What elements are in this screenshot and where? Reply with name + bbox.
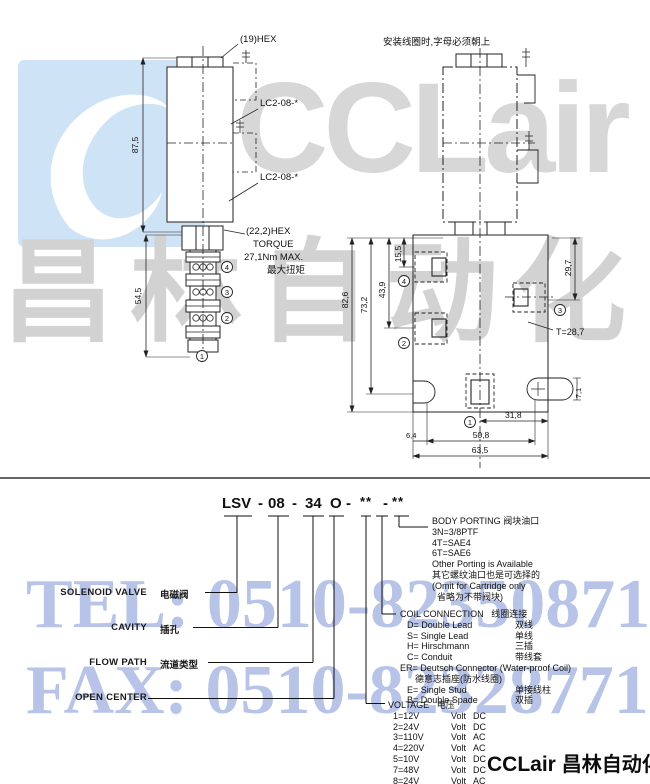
footer-brand-cn: 昌林自动化 — [562, 754, 650, 776]
dim-87-5: 87,5 — [130, 136, 140, 153]
right-port-4: 4 — [402, 277, 406, 286]
code-open-center: O — [330, 495, 342, 512]
coil-option-cn: 单接线柱 — [515, 685, 551, 695]
dim-50-8: 50,8 — [473, 430, 490, 440]
voltage-option: 4=220V — [393, 743, 451, 754]
porting-omit-note: (Omit for Cartridge only — [432, 581, 540, 592]
label-flow-path: FLOW PATH — [37, 657, 147, 668]
voltage-option: 5=10V — [393, 754, 451, 765]
coil-option-cn: 带线套 — [515, 652, 542, 662]
porting-note: Other Porting is Available — [432, 559, 540, 570]
voltage-unit: Volt — [451, 754, 473, 765]
label-solenoid-valve-cn: 电磁阀 — [160, 587, 189, 601]
label-flow-path-cn: 流道类型 — [160, 657, 198, 671]
porting-option: 4T=SAE4 — [432, 538, 540, 549]
voltage-current: AC — [473, 732, 486, 742]
dim-54-5: 54,5 — [133, 287, 143, 304]
code-dash-2: - — [292, 495, 297, 512]
voltage-current: DC — [473, 765, 486, 775]
coil-option-cn: 双插 — [515, 695, 533, 705]
voltage-option: 7=48V — [393, 765, 451, 776]
label-cavity-cn: 插孔 — [160, 622, 179, 636]
voltage-title: VOLTAGE — [388, 700, 429, 710]
body-porting-title-cn: 阀块油口 — [503, 516, 539, 526]
coil-option: S= Single Lead — [407, 631, 515, 642]
porting-option: 6T=SAE6 — [432, 548, 540, 559]
hex19-label: (19)HEX — [240, 34, 277, 45]
voltage-current: AC — [473, 776, 486, 784]
left-valve-drawing: 4 3 2 1 (19)HEX LC2-08-* LC2-08-* (22,2)… — [130, 34, 306, 362]
porting-option: 3N=3/8PTF — [432, 527, 540, 538]
torque-label: TORQUE — [253, 239, 293, 250]
coil-option: D= Double Lead — [407, 620, 515, 631]
dim-t-28-7: T=28,7 — [556, 327, 584, 337]
voltage-current: AC — [473, 743, 486, 753]
code-cavity: 08 — [268, 495, 285, 512]
coil-connection-title-cn: 线圈连接 — [491, 609, 527, 619]
coil-install-note: 安装线圈时,字母必须朝上 — [383, 36, 491, 48]
coil-option-cn: 双线 — [515, 620, 533, 630]
dim-29-7: 29,7 — [563, 259, 573, 276]
hex22-label: (22,2)HEX — [246, 226, 291, 237]
dim-6-4: 6,4 — [406, 431, 416, 440]
dim-63-5: 63,5 — [472, 445, 489, 455]
coil-option: E= Single Stud — [407, 685, 515, 696]
voltage-option: 2=24V — [393, 722, 451, 733]
torque-value: 27,1Nm MAX. — [244, 252, 303, 263]
porting-note-cn: 其它螺纹油口也是可选择的 — [432, 570, 540, 581]
code-dash-4: - — [383, 495, 388, 512]
voltage-unit: Volt — [451, 743, 473, 754]
voltage-current: DC — [473, 711, 486, 721]
coil-option-cn: 单线 — [515, 631, 533, 641]
left-port-2: 2 — [225, 314, 229, 323]
label-cavity: CAVITY — [37, 622, 147, 633]
coil-connection-block: COIL CONNECTION 线圈连接 D= Double Lead双线 S=… — [400, 609, 571, 706]
code-series: LSV — [222, 495, 251, 512]
left-port-1: 1 — [200, 352, 204, 361]
voltage-current: DC — [473, 722, 486, 732]
dim-43-9: 43,9 — [377, 281, 387, 298]
right-port-1: 1 — [468, 418, 472, 427]
label-open-center: OPEN CENTER — [37, 692, 147, 703]
coil-option: H= Hirschmann — [407, 641, 515, 652]
dim-31-8: 31,8 — [505, 410, 522, 420]
voltage-option: 1=12V — [393, 711, 451, 722]
datasheet-page: CCLair 昌林自动化 TEL: 0510-82350871 FAX: 051… — [0, 0, 650, 784]
body-porting-block: BODY PORTING 阀块油口 3N=3/8PTF 4T=SAE4 6T=S… — [432, 516, 540, 602]
coil-connection-title: COIL CONNECTION — [400, 609, 484, 619]
voltage-title-cn: 电压 — [437, 700, 455, 710]
coil-option: C= Conduit — [407, 652, 515, 663]
code-dash-1: - — [258, 495, 263, 512]
voltage-current: DC — [473, 754, 486, 764]
voltage-option: 3=110V — [393, 732, 451, 743]
torque-cn: 最大扭矩 — [267, 264, 306, 276]
dim-7-1: 7,1 — [574, 388, 583, 398]
voltage-unit: Volt — [451, 732, 473, 743]
voltage-option: 8=24V — [393, 776, 451, 784]
dim-15-5: 15,5 — [393, 245, 403, 262]
lc2-label-2: LC2-08-* — [260, 172, 298, 183]
code-voltage-connection: ** — [360, 494, 372, 509]
lc2-label-1: LC2-08-* — [260, 98, 298, 109]
voltage-block: VOLTAGE 电压 1=12VVoltDC 2=24VVoltDC 3=110… — [388, 700, 486, 784]
footer-brand: CCLair 昌林自动化 — [487, 748, 650, 777]
label-solenoid-valve: SOLENOID VALVE — [37, 587, 147, 598]
right-port-2: 2 — [402, 339, 406, 348]
dim-73-2: 73,2 — [359, 296, 369, 313]
coil-option-er: ER= Deutsch Connector (Water-proof Coil) — [400, 663, 571, 674]
code-dash-3: - — [346, 495, 351, 512]
porting-omit-note-cn: 省略为不带阀块) — [432, 592, 540, 603]
coil-option-cn: 三插 — [515, 641, 533, 651]
order-code-lines — [148, 516, 428, 704]
voltage-unit: Volt — [451, 711, 473, 722]
body-porting-title: BODY PORTING — [432, 516, 501, 526]
voltage-unit: Volt — [451, 765, 473, 776]
footer-brand-en: CCLair — [487, 753, 556, 776]
left-port-4: 4 — [225, 263, 229, 272]
left-port-3: 3 — [225, 288, 229, 297]
right-port-3: 3 — [558, 306, 562, 315]
dim-82-6: 82,6 — [340, 291, 350, 308]
voltage-unit: Volt — [451, 776, 473, 784]
code-flow-path: 34 — [305, 495, 322, 512]
coil-option-er-cn: 德意志插座(防水线圈) — [400, 674, 571, 685]
voltage-unit: Volt — [451, 722, 473, 733]
code-body-porting: ** — [392, 494, 404, 509]
right-valve-drawing: 4 2 3 1 安装线圈时,字母必须朝上 82,6 73,2 43,9 15,5… — [340, 36, 584, 468]
